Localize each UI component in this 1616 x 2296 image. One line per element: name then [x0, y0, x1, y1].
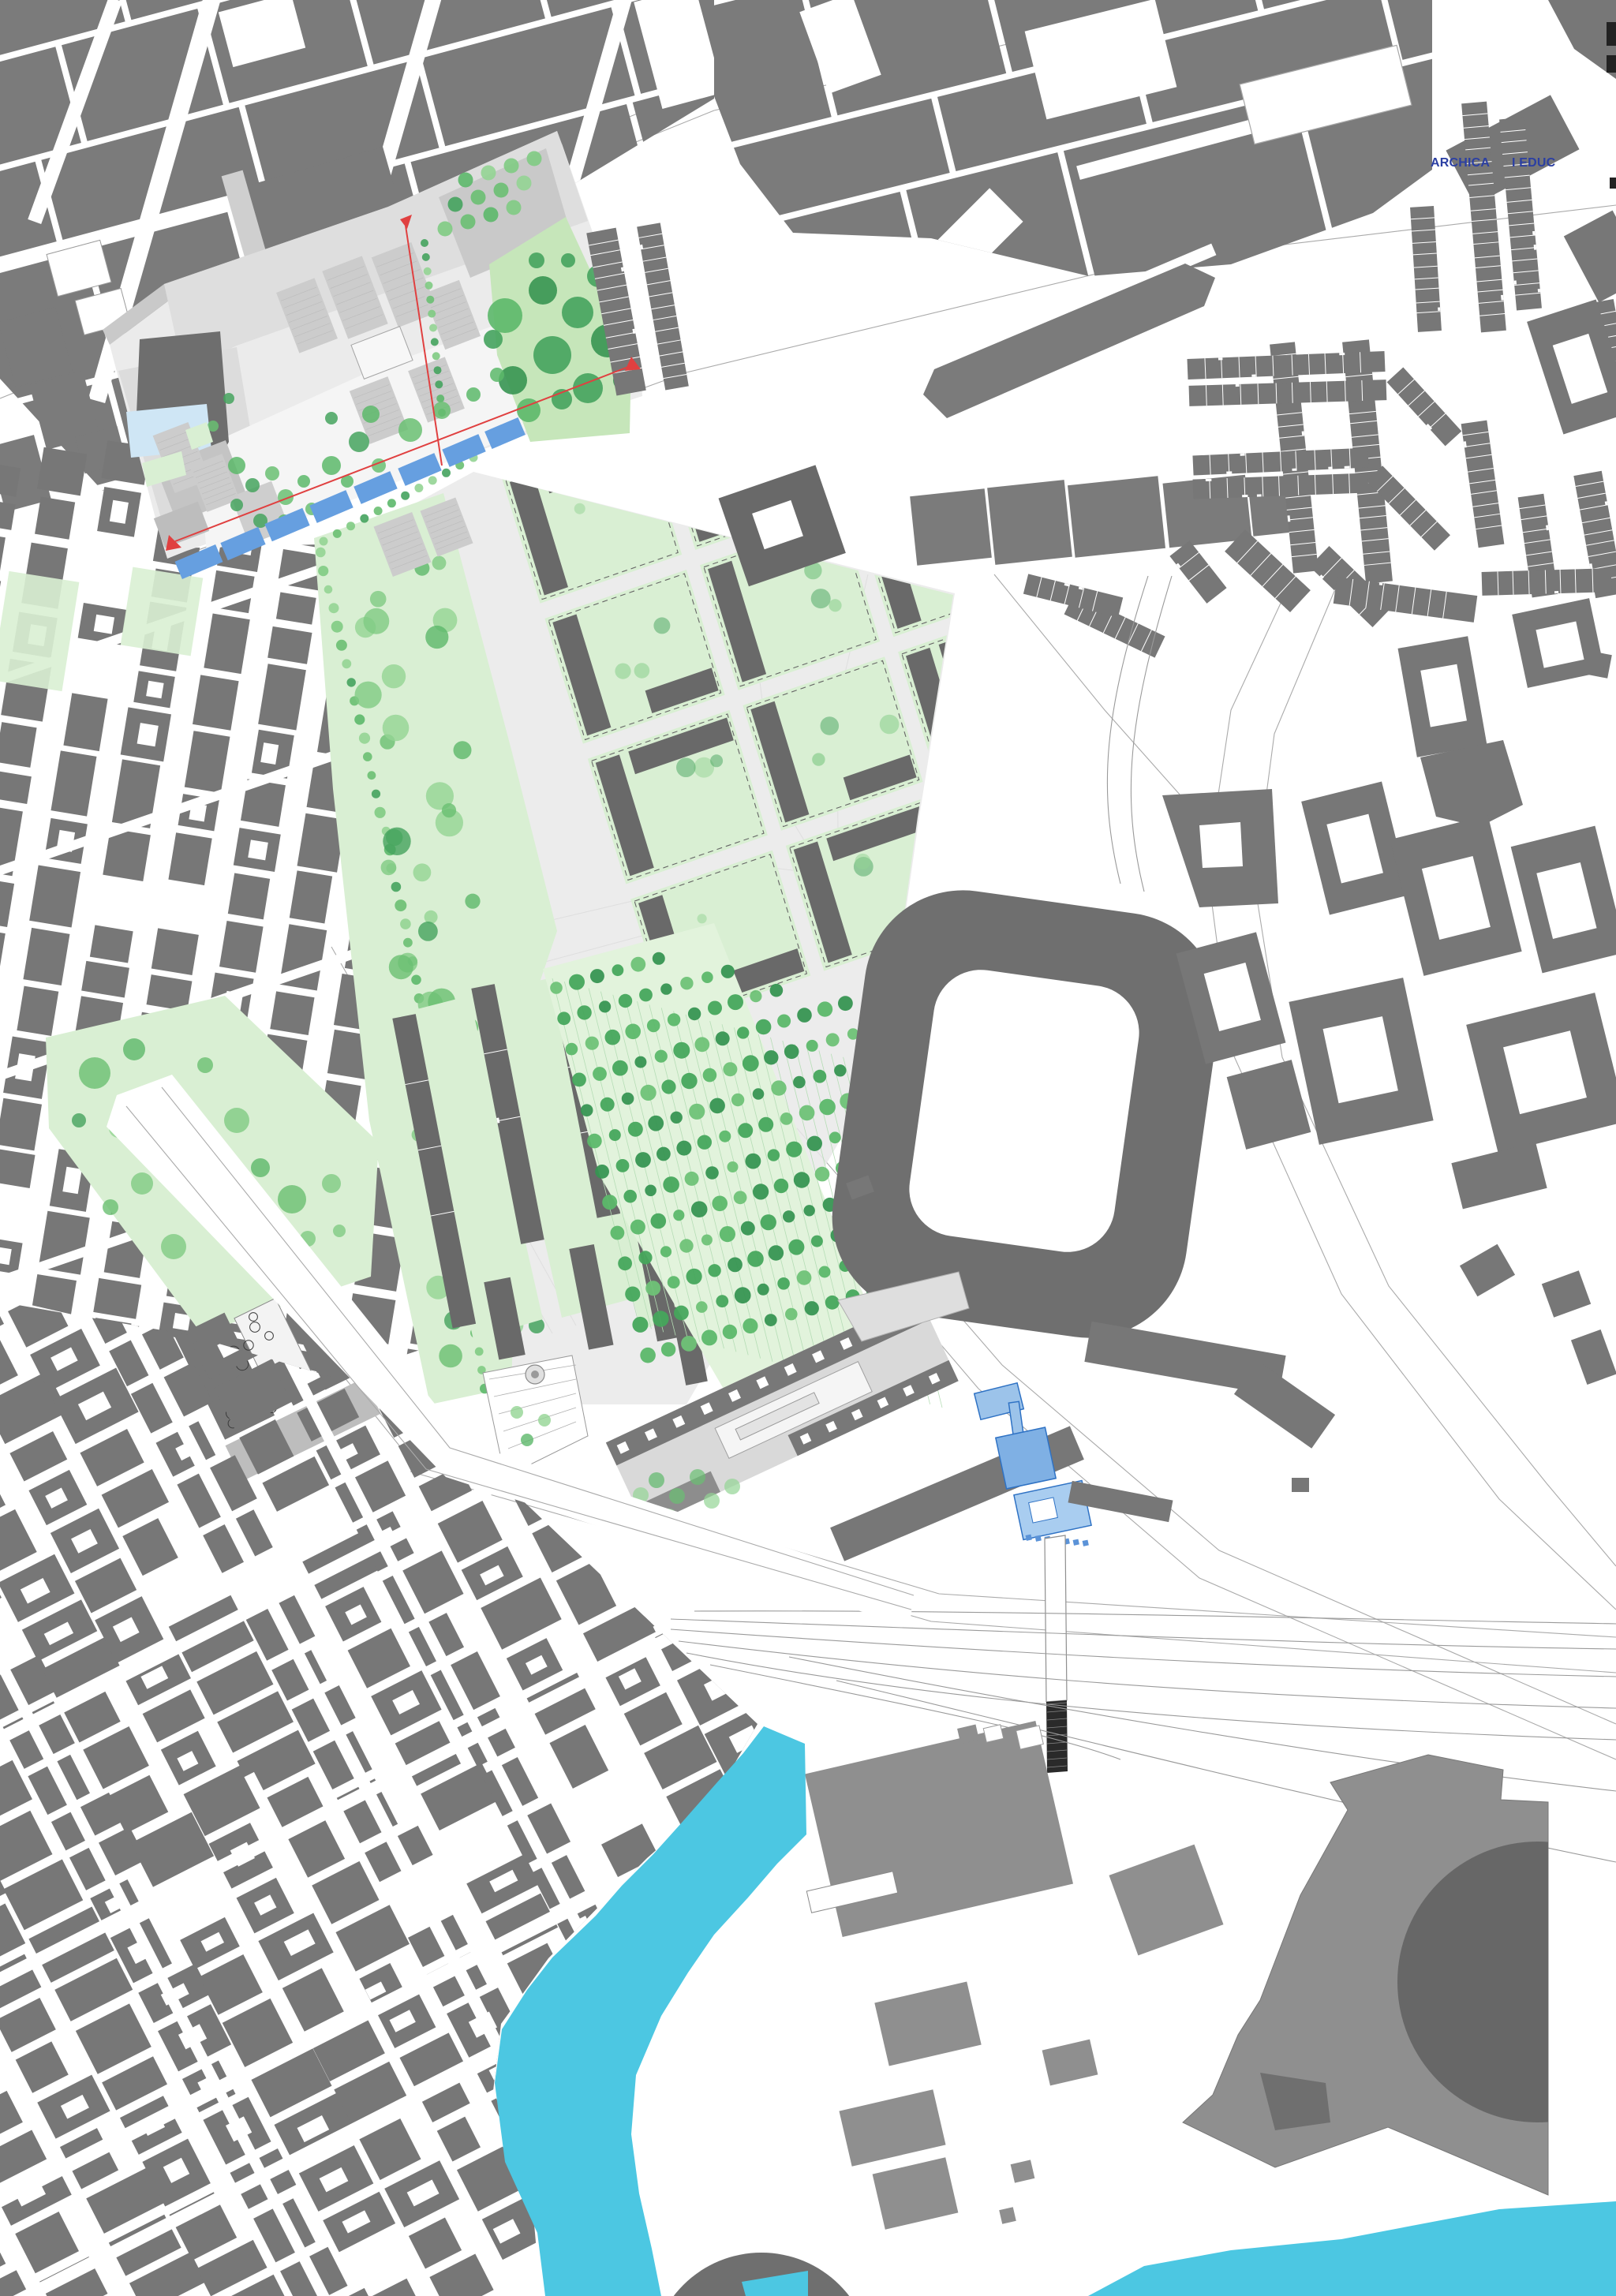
svg-text:I EDUC: I EDUC	[1512, 156, 1556, 170]
svg-text:ARCHICA: ARCHICA	[1431, 156, 1490, 170]
